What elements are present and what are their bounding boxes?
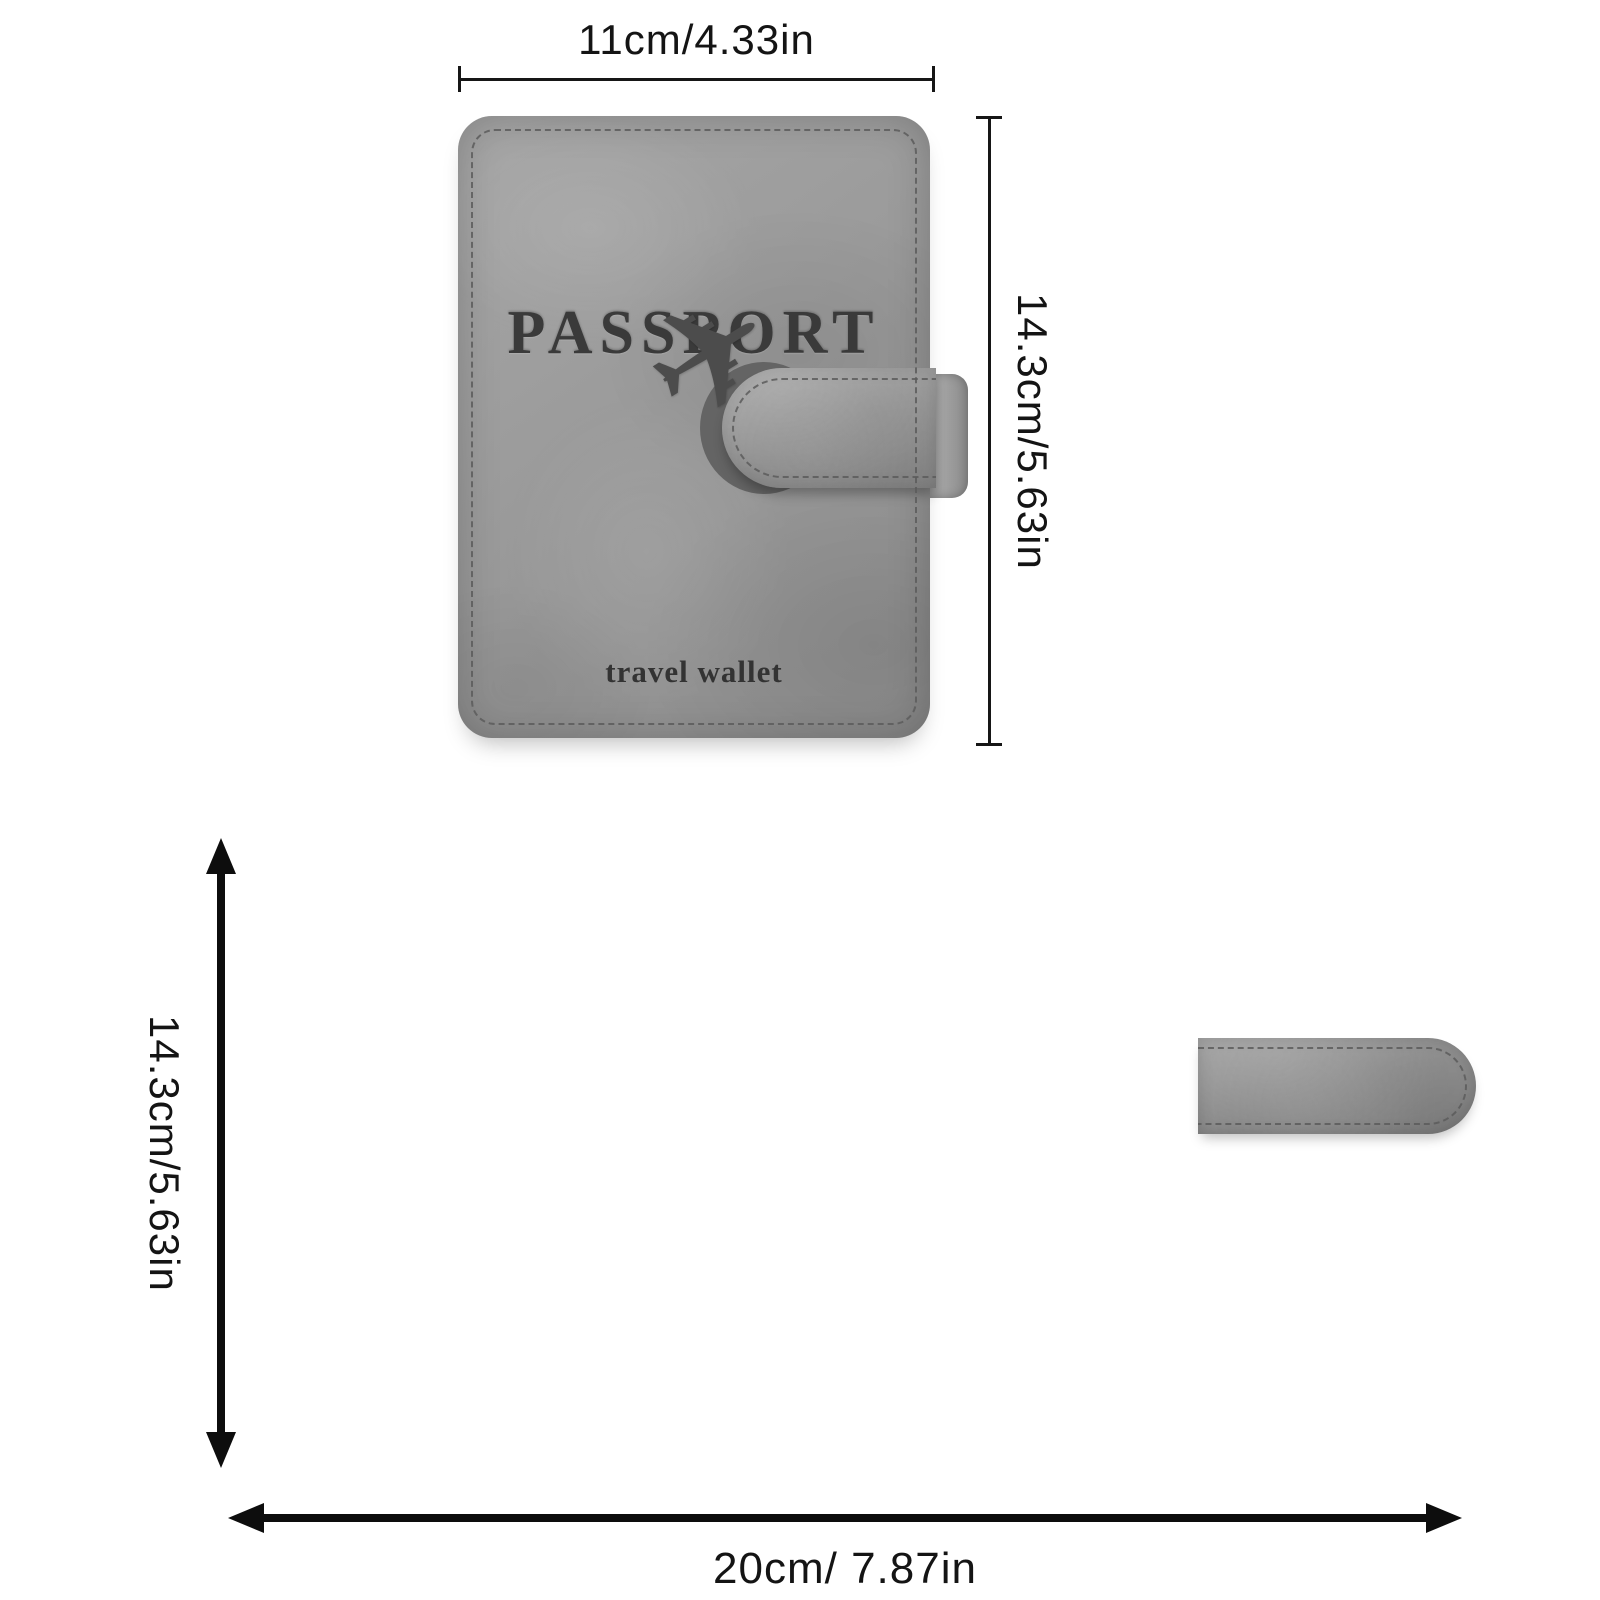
dimension-line xyxy=(458,78,935,81)
dimension-arrow-shaft xyxy=(217,864,225,1442)
arrow-head-down xyxy=(206,1432,236,1468)
open-height-dimension-arrow xyxy=(206,838,236,1468)
closed-width-dimension-line xyxy=(458,66,935,92)
closed-height-dimension-label: 14.3cm/5.63in xyxy=(1008,293,1056,570)
dimension-end-tick xyxy=(932,66,935,92)
open-snap-strap xyxy=(1198,1038,1476,1134)
dimension-end-tick xyxy=(976,116,1002,119)
closed-height-dimension-line xyxy=(976,116,1002,746)
open-height-dimension-label: 14.3cm/5.63in xyxy=(140,1015,188,1292)
arrow-head-right xyxy=(1426,1503,1462,1533)
open-width-dimension-arrow xyxy=(228,1503,1462,1533)
open-view-section: 14.3cm/5.63in xyxy=(0,800,1600,1600)
closed-view-section: 11cm/4.33in PASSPORT ✈ travel wallet 14.… xyxy=(0,0,1600,800)
dimension-end-tick xyxy=(458,66,461,92)
arrow-head-up xyxy=(206,838,236,874)
closed-width-dimension-label: 11cm/4.33in xyxy=(458,16,935,64)
dimension-end-tick xyxy=(976,743,1002,746)
open-width-dimension-label: 20cm/ 7.87in xyxy=(228,1544,1462,1594)
cover-subtitle: travel wallet xyxy=(458,654,930,690)
open-strap-stitch-border xyxy=(1198,1047,1467,1125)
closed-height-dimension-label-wrap: 14.3cm/5.63in xyxy=(1008,116,1056,746)
open-height-dimension-label-wrap: 14.3cm/5.63in xyxy=(140,838,188,1468)
dimension-arrow-shaft xyxy=(254,1514,1436,1522)
dimension-line xyxy=(988,116,991,746)
product-dimension-photo: 11cm/4.33in PASSPORT ✈ travel wallet 14.… xyxy=(0,0,1600,1600)
arrow-head-left xyxy=(228,1503,264,1533)
